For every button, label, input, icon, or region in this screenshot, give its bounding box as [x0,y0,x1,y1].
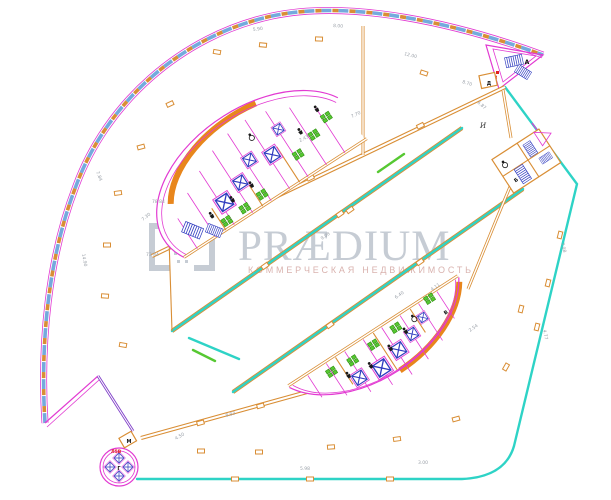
dimension-label: 5.98 [300,466,310,472]
dimension-label: 8.93 [225,410,236,419]
dimension-label: 7.70 [350,110,362,120]
column-icon [518,305,524,313]
dimension-label: 6.87 [476,100,488,111]
facade-edge [45,376,98,423]
column-icon [137,144,145,150]
elevator-shaft-icon [122,461,135,474]
dimension-label: 5.90 [253,26,264,33]
dimension-label: 7.30 [141,212,153,223]
watermark-subtitle: КОММЕРЧЕСКАЯ НЕДВИЖИМОСТЬ [248,265,474,275]
ramp-green [193,350,215,361]
column-icon [503,363,510,371]
column-icon [166,101,174,108]
ramp-edge [189,338,239,359]
stair-tower-G: Г М Л5В [100,431,138,486]
stair-id-label: Л5В [111,449,122,455]
column-icon [232,477,239,481]
column-icon [198,449,205,453]
dimension-label: 7.84 [94,171,103,183]
dimension-label: 12.00 [404,51,418,60]
column-icon [534,323,540,331]
grid-ref-label: 78 84 [152,199,165,205]
column-icon [336,210,344,217]
column-icon [104,243,111,247]
room-label: М [127,439,132,445]
column-icon [213,49,221,54]
column-icon [114,191,121,196]
dimension-label: 8.70 [461,79,472,88]
column-icon [387,477,394,481]
dimension-label: 2.54 [468,323,480,334]
dimension-label: 8.00 [333,23,344,30]
column-icon [315,37,322,41]
column-icon [420,70,428,76]
stair-cluster-B: Б [492,125,567,193]
column-icon [327,445,334,449]
dimension-label: 4.50 [174,431,186,441]
column-icon [393,437,400,442]
column-icon [256,450,263,454]
room-label: Д [487,81,492,87]
elevator-shaft-icon [104,461,117,474]
column-icon [557,231,563,239]
facade-edge-inner [47,380,99,427]
floor-plan-page: PRÆDIUM КОММЕРЧЕСКАЯ НЕДВИЖИМОСТЬ [0,0,611,500]
column-icon [545,279,551,287]
column-icon [101,294,108,298]
purple-wall-inner [98,376,133,431]
column-icon [259,43,266,48]
exit-marker [496,71,499,74]
column-icon [119,342,127,347]
section-label: А [525,59,530,66]
lower-core: В [288,276,489,435]
curtain-wall-band [44,10,543,423]
dimension-label: 6.40 [394,290,406,301]
column-icon [326,321,334,328]
stairs-icon [514,64,531,79]
dimension-label: 4.77 [541,329,549,340]
dimension-label: 14.90 [80,253,88,267]
floor-plan-canvas: PRÆDIUM КОММЕРЧЕСКАЯ НЕДВИЖИМОСТЬ [0,0,611,500]
grid-ref-label: 73 84 [146,252,159,258]
dimension-label: 3.00 [418,460,428,466]
field-mark-label: И [479,122,487,130]
column-icon [307,477,314,481]
column-icon [452,416,460,422]
